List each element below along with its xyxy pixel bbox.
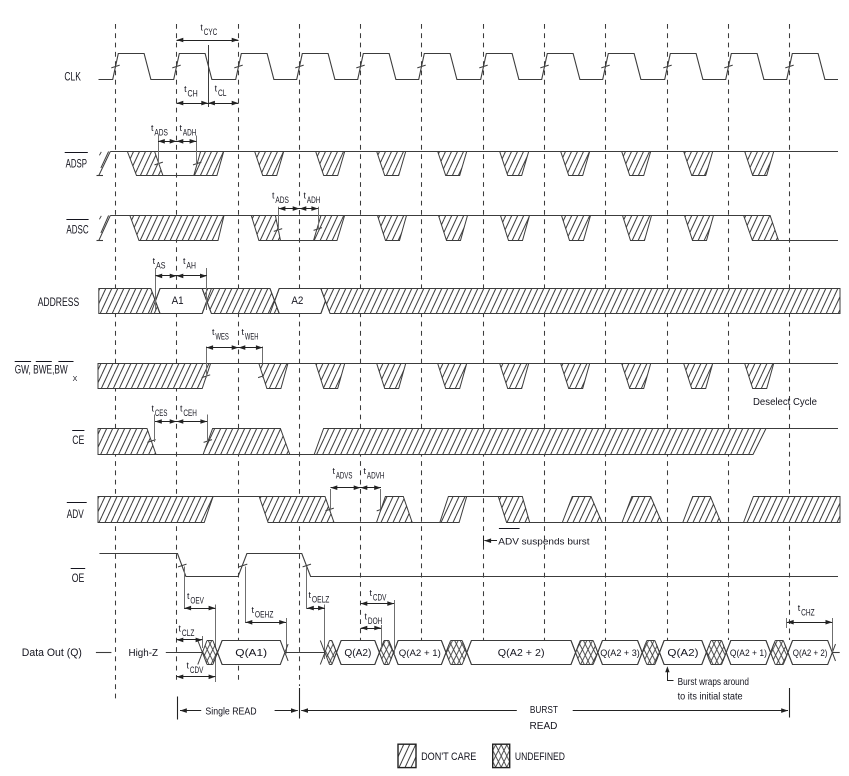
svg-text:WES: WES (215, 331, 229, 341)
svg-text:ADVS: ADVS (336, 470, 353, 480)
svg-text:CDV: CDV (190, 665, 204, 675)
svg-text:Data Out (Q): Data Out (Q) (22, 647, 82, 659)
svg-text:OELZ: OELZ (312, 594, 330, 604)
svg-text:CH: CH (188, 88, 198, 98)
svg-text:Single READ: Single READ (205, 705, 257, 717)
svg-text:CYC: CYC (204, 27, 218, 37)
svg-text:Burst wraps around: Burst wraps around (678, 677, 749, 688)
svg-text:CEH: CEH (183, 408, 197, 418)
svg-text:Q(A2 + 2): Q(A2 + 2) (498, 647, 545, 659)
svg-text:OEV: OEV (190, 595, 204, 605)
svg-text:DON'T CARE: DON'T CARE (421, 751, 476, 763)
svg-text:Q(A2 + 1): Q(A2 + 1) (399, 648, 441, 659)
svg-text:GW, BWE,BW: GW, BWE,BW (15, 365, 68, 377)
svg-text:BURST: BURST (530, 704, 558, 716)
svg-text:Q(A2): Q(A2) (667, 647, 698, 659)
svg-text:X: X (73, 376, 78, 383)
svg-text:OE: OE (72, 573, 85, 585)
svg-text:ADS: ADS (154, 127, 168, 137)
svg-text:ADH: ADH (183, 127, 197, 137)
svg-text:OEHZ: OEHZ (255, 609, 274, 619)
svg-text:Q(A1): Q(A1) (235, 647, 267, 659)
svg-text:DOH: DOH (368, 616, 383, 626)
svg-text:CLZ: CLZ (182, 628, 195, 638)
svg-text:ADSP: ADSP (66, 158, 88, 170)
svg-text:ADH: ADH (307, 195, 321, 205)
svg-text:ADV suspends burst: ADV suspends burst (498, 536, 590, 547)
svg-text:ADV: ADV (67, 509, 84, 521)
svg-text:CHZ: CHZ (801, 607, 815, 617)
svg-text:Q(A2 + 2): Q(A2 + 2) (793, 648, 828, 658)
svg-text:CDV: CDV (373, 592, 387, 602)
svg-text:CES: CES (155, 408, 168, 418)
svg-text:Q(A2): Q(A2) (344, 647, 371, 659)
svg-text:CL: CL (218, 88, 227, 98)
svg-text:CE: CE (72, 435, 84, 447)
svg-text:ADSC: ADSC (66, 225, 88, 237)
svg-text:Q(A2 + 3): Q(A2 + 3) (600, 648, 640, 659)
svg-text:Deselect Cycle: Deselect Cycle (753, 396, 817, 408)
svg-text:READ: READ (530, 720, 558, 732)
svg-text:Q(A2 + 1): Q(A2 + 1) (730, 648, 767, 658)
svg-text:A1: A1 (172, 295, 184, 307)
svg-text:to its initial state: to its initial state (678, 692, 743, 703)
svg-text:ADDRESS: ADDRESS (38, 297, 80, 309)
svg-text:CLK: CLK (64, 72, 81, 84)
svg-text:AH: AH (186, 260, 196, 270)
svg-text:WEH: WEH (245, 331, 259, 341)
svg-text:ADS: ADS (275, 195, 289, 205)
svg-text:High-Z: High-Z (129, 647, 159, 659)
svg-text:A2: A2 (291, 295, 303, 307)
svg-text:ADVH: ADVH (367, 470, 385, 480)
svg-text:AS: AS (156, 260, 166, 270)
svg-text:UNDEFINED: UNDEFINED (515, 751, 565, 763)
